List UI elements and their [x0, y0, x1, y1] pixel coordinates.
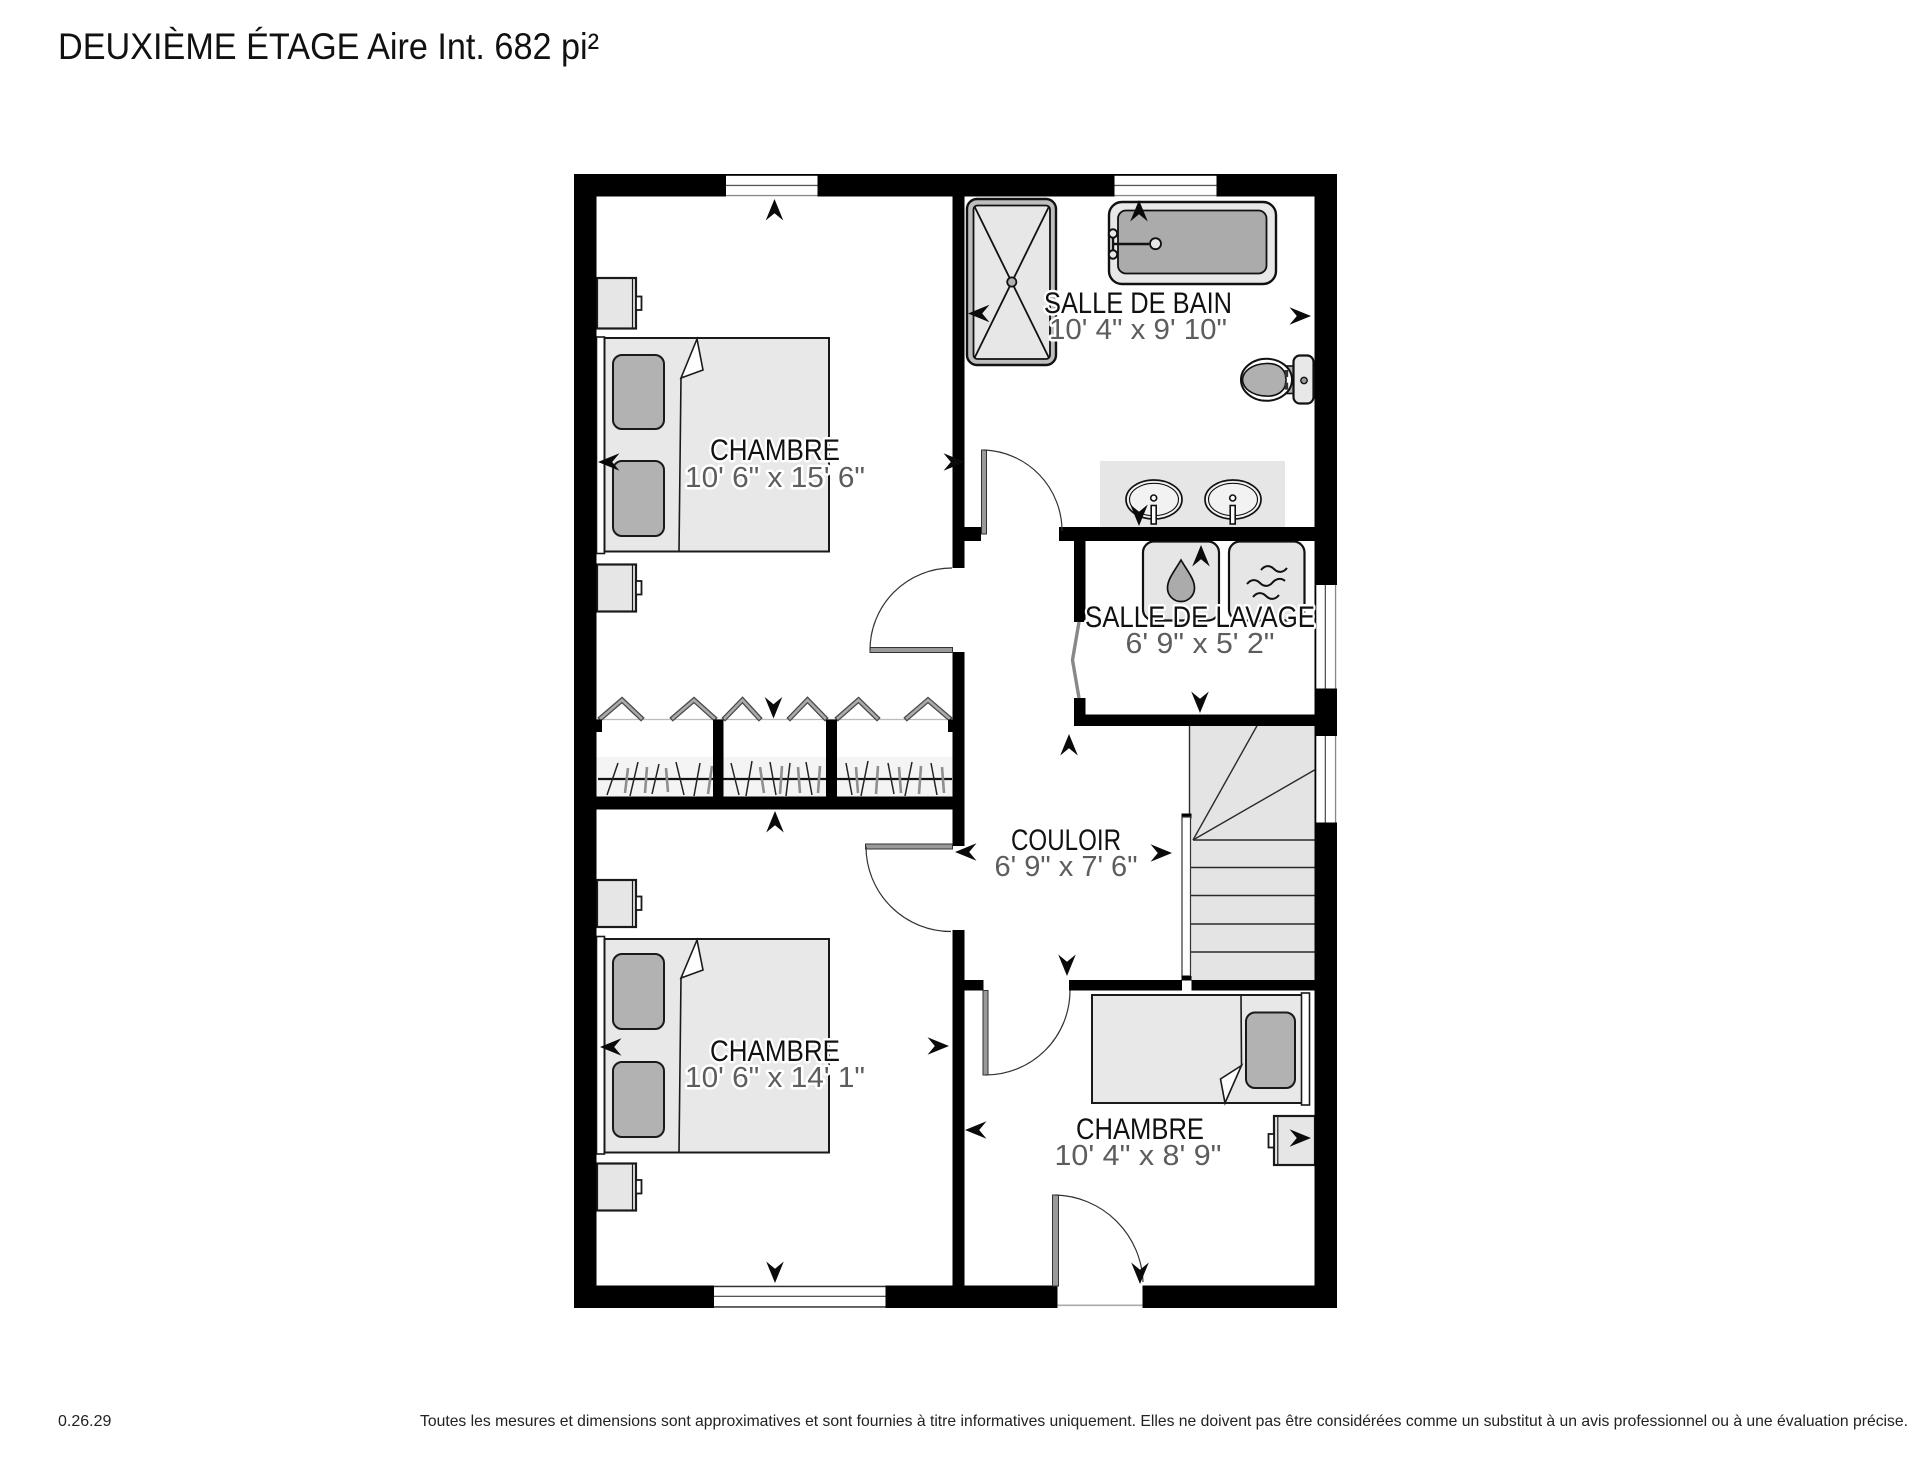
svg-text:10' 6" x 14' 1": 10' 6" x 14' 1" [685, 1062, 865, 1094]
svg-text:DEUXIÈME ÉTAGE Aire Int. 682 p: DEUXIÈME ÉTAGE Aire Int. 682 pi² [58, 26, 599, 67]
svg-text:0.26.29: 0.26.29 [58, 1413, 111, 1430]
svg-text:6' 9" x 5' 2": 6' 9" x 5' 2" [1126, 628, 1275, 660]
svg-text:10' 4" x 8' 9": 10' 4" x 8' 9" [1055, 1140, 1222, 1172]
svg-text:10' 4" x 9' 10": 10' 4" x 9' 10" [1049, 314, 1227, 346]
svg-text:6' 9" x 7' 6": 6' 9" x 7' 6" [995, 851, 1138, 883]
svg-text:Toutes les mesures et dimensio: Toutes les mesures et dimensions sont ap… [420, 1413, 1908, 1430]
svg-text:10' 6" x 15' 6": 10' 6" x 15' 6" [685, 462, 865, 494]
